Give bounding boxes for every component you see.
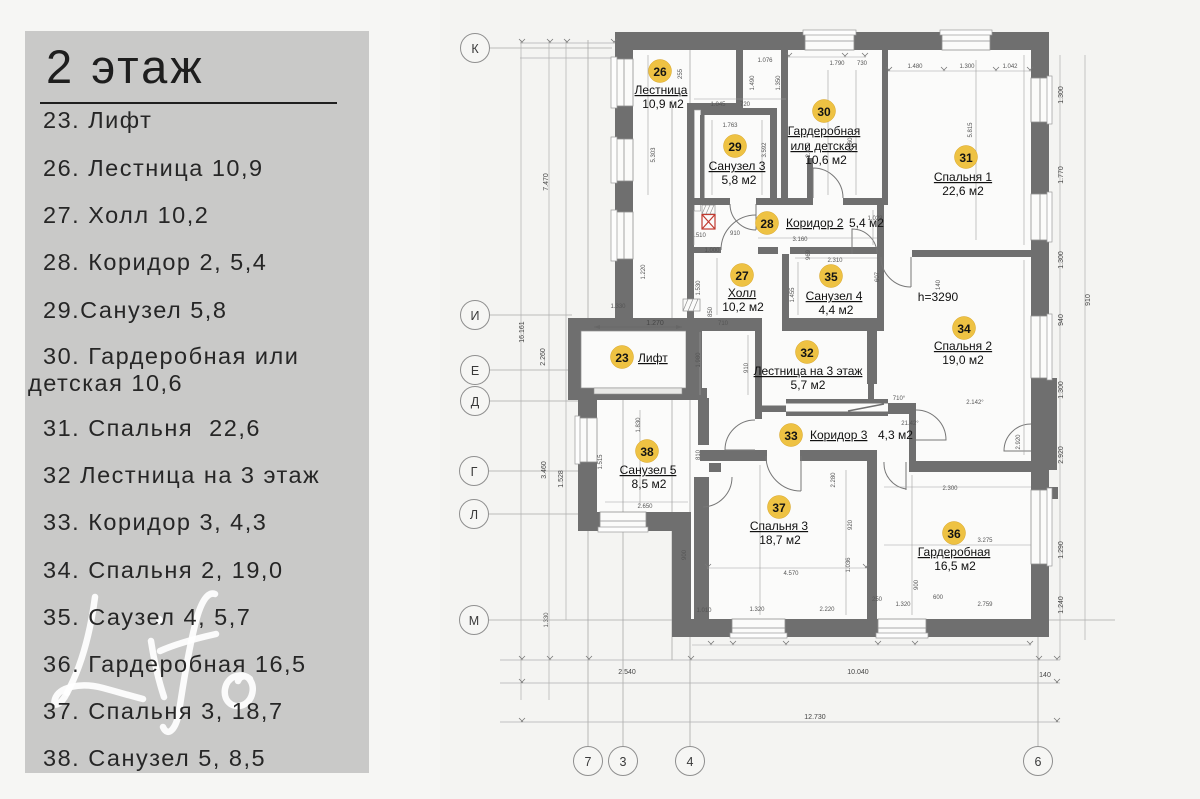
svg-text:2.920: 2.920 bbox=[1058, 446, 1065, 464]
svg-text:850: 850 bbox=[708, 306, 714, 317]
svg-text:И: И bbox=[471, 309, 480, 323]
svg-text:8,5 м2: 8,5 м2 bbox=[632, 477, 667, 491]
svg-text:1.860: 1.860 bbox=[848, 137, 854, 153]
svg-text:910: 910 bbox=[1085, 294, 1092, 306]
svg-text:1.350: 1.350 bbox=[776, 75, 782, 91]
svg-text:30: 30 bbox=[817, 105, 831, 119]
svg-text:2.540: 2.540 bbox=[618, 669, 636, 676]
svg-text:730: 730 bbox=[857, 61, 868, 67]
svg-text:5.303: 5.303 bbox=[651, 147, 657, 163]
svg-text:2.220: 2.220 bbox=[819, 607, 835, 613]
svg-text:2.650: 2.650 bbox=[637, 504, 653, 510]
svg-text:2.920: 2.920 bbox=[1016, 434, 1022, 450]
svg-text:26: 26 bbox=[653, 65, 667, 79]
svg-text:2.310: 2.310 bbox=[827, 258, 843, 264]
svg-text:910: 910 bbox=[744, 362, 750, 373]
svg-text:Лифт: Лифт bbox=[638, 351, 668, 365]
svg-text:3.592: 3.592 bbox=[762, 142, 768, 158]
svg-text:1.220: 1.220 bbox=[641, 264, 647, 280]
svg-text:1.530: 1.530 bbox=[696, 280, 702, 296]
svg-text:1.455: 1.455 bbox=[790, 287, 796, 303]
svg-text:Санузел 5: Санузел 5 bbox=[620, 463, 677, 477]
svg-text:h=3290: h=3290 bbox=[918, 290, 959, 304]
svg-text:29: 29 bbox=[728, 140, 742, 154]
svg-text:810: 810 bbox=[696, 449, 702, 460]
svg-text:4,3 м2: 4,3 м2 bbox=[878, 428, 913, 442]
svg-text:33: 33 bbox=[784, 429, 798, 443]
svg-text:7.470: 7.470 bbox=[543, 173, 550, 191]
svg-text:2.300: 2.300 bbox=[942, 486, 958, 492]
svg-text:3.275: 3.275 bbox=[977, 538, 993, 544]
svg-text:607: 607 bbox=[875, 271, 881, 282]
svg-text:10.040: 10.040 bbox=[847, 669, 869, 676]
svg-text:Коридор 3: Коридор 3 bbox=[810, 428, 868, 442]
svg-text:22,6 м2: 22,6 м2 bbox=[942, 184, 984, 198]
svg-text:19,0 м2: 19,0 м2 bbox=[942, 353, 984, 367]
svg-text:3.160: 3.160 bbox=[792, 237, 808, 243]
svg-text:16,5 м2: 16,5 м2 bbox=[934, 559, 976, 573]
svg-text:140: 140 bbox=[1039, 672, 1051, 679]
svg-text:4: 4 bbox=[687, 755, 694, 769]
svg-text:1.320: 1.320 bbox=[895, 602, 911, 608]
svg-text:1.330: 1.330 bbox=[610, 304, 626, 310]
svg-text:К: К bbox=[471, 42, 479, 56]
svg-text:27: 27 bbox=[735, 269, 749, 283]
svg-text:1.490: 1.490 bbox=[750, 75, 756, 91]
svg-text:1.300: 1.300 bbox=[1058, 86, 1065, 104]
svg-text:255: 255 bbox=[678, 68, 684, 79]
svg-text:1.528: 1.528 bbox=[558, 470, 565, 488]
svg-text:1.763: 1.763 bbox=[722, 123, 738, 129]
svg-text:Г: Г bbox=[471, 465, 478, 479]
svg-text:12.730: 12.730 bbox=[804, 714, 826, 721]
svg-text:10,2 м2: 10,2 м2 bbox=[722, 300, 764, 314]
svg-text:5,8 м2: 5,8 м2 bbox=[722, 173, 757, 187]
svg-text:23: 23 bbox=[615, 351, 629, 365]
svg-text:1.045: 1.045 bbox=[710, 102, 726, 108]
svg-text:Д: Д bbox=[471, 395, 480, 409]
svg-text:21.42°: 21.42° bbox=[901, 421, 919, 427]
svg-text:2.260: 2.260 bbox=[540, 348, 547, 366]
svg-text:140: 140 bbox=[936, 279, 942, 290]
svg-text:.510: .510 bbox=[694, 233, 706, 239]
svg-text:1.330: 1.330 bbox=[544, 612, 550, 628]
svg-text:1.010: 1.010 bbox=[696, 608, 712, 614]
svg-text:2.759: 2.759 bbox=[977, 602, 993, 608]
svg-text:36: 36 bbox=[947, 527, 961, 541]
svg-text:250: 250 bbox=[872, 597, 883, 603]
svg-text:1.023: 1.023 bbox=[867, 216, 883, 222]
svg-text:710°: 710° bbox=[893, 396, 906, 402]
svg-text:1.240: 1.240 bbox=[1058, 596, 1065, 614]
svg-text:1.042: 1.042 bbox=[1002, 64, 1018, 70]
svg-text:940: 940 bbox=[1058, 314, 1065, 326]
svg-text:31: 31 bbox=[959, 151, 973, 165]
svg-text:720: 720 bbox=[740, 102, 751, 108]
svg-text:2.410: 2.410 bbox=[806, 142, 812, 158]
svg-text:Спальня 1: Спальня 1 bbox=[934, 170, 993, 184]
svg-text:1.300: 1.300 bbox=[1058, 251, 1065, 269]
svg-text:1.830: 1.830 bbox=[636, 417, 642, 433]
svg-text:900: 900 bbox=[682, 549, 688, 560]
svg-text:Санузел 3: Санузел 3 bbox=[709, 159, 766, 173]
svg-text:Гардеробная: Гардеробная bbox=[918, 545, 991, 559]
svg-text:1.320: 1.320 bbox=[749, 607, 765, 613]
svg-text:4.570: 4.570 bbox=[783, 571, 799, 577]
svg-text:16.161: 16.161 bbox=[519, 321, 526, 343]
svg-text:38: 38 bbox=[640, 445, 654, 459]
svg-text:6: 6 bbox=[1035, 755, 1042, 769]
svg-text:1.076: 1.076 bbox=[757, 58, 773, 64]
svg-text:910: 910 bbox=[730, 231, 741, 237]
svg-text:34: 34 bbox=[957, 322, 971, 336]
svg-text:969: 969 bbox=[806, 249, 812, 260]
svg-text:32: 32 bbox=[800, 346, 814, 360]
svg-text:4,4 м2: 4,4 м2 bbox=[819, 303, 854, 317]
svg-text:Гардеробная: Гардеробная bbox=[788, 124, 861, 138]
svg-text:1.770: 1.770 bbox=[1058, 166, 1065, 184]
svg-text:Холл: Холл bbox=[728, 286, 756, 300]
svg-text:Лестница: Лестница bbox=[635, 83, 688, 97]
svg-text:1.980: 1.980 bbox=[696, 352, 702, 368]
svg-text:3.460: 3.460 bbox=[541, 461, 548, 479]
svg-text:Коридор 2: Коридор 2 bbox=[786, 216, 844, 230]
svg-text:900: 900 bbox=[914, 579, 920, 590]
svg-text:35: 35 bbox=[824, 270, 838, 284]
svg-text:37: 37 bbox=[772, 501, 786, 515]
svg-text:600: 600 bbox=[933, 595, 944, 601]
svg-text:1.790: 1.790 bbox=[829, 61, 845, 67]
svg-text:Санузел 4: Санузел 4 bbox=[806, 289, 863, 303]
svg-text:1.290: 1.290 bbox=[1058, 541, 1065, 559]
svg-text:1.300: 1.300 bbox=[959, 64, 975, 70]
svg-text:10,9 м2: 10,9 м2 bbox=[642, 97, 684, 111]
svg-text:Е: Е bbox=[471, 364, 479, 378]
svg-text:1.000: 1.000 bbox=[704, 248, 720, 254]
svg-text:18,7 м2: 18,7 м2 bbox=[759, 533, 801, 547]
svg-text:710: 710 bbox=[718, 321, 729, 327]
svg-text:М: М bbox=[469, 614, 479, 628]
svg-text:5.815: 5.815 bbox=[968, 122, 974, 138]
svg-text:Спальня 3: Спальня 3 bbox=[750, 519, 809, 533]
svg-text:2.280: 2.280 bbox=[831, 472, 837, 488]
svg-text:Спальня 2: Спальня 2 bbox=[934, 339, 993, 353]
svg-text:Лестница на 3 этаж: Лестница на 3 этаж bbox=[754, 364, 863, 378]
svg-text:5,7 м2: 5,7 м2 bbox=[791, 378, 826, 392]
svg-text:1.036: 1.036 bbox=[846, 557, 852, 573]
svg-text:3: 3 bbox=[620, 755, 627, 769]
svg-text:Л: Л bbox=[470, 508, 478, 522]
svg-text:1.515: 1.515 bbox=[598, 454, 604, 470]
svg-text:2.142°: 2.142° bbox=[966, 400, 984, 406]
svg-text:28: 28 bbox=[760, 217, 774, 231]
svg-text:920: 920 bbox=[848, 519, 854, 530]
svg-text:7: 7 bbox=[585, 755, 592, 769]
svg-text:1.300: 1.300 bbox=[1058, 381, 1065, 399]
svg-text:1.480: 1.480 bbox=[907, 64, 923, 70]
svg-text:1.270: 1.270 bbox=[646, 320, 664, 327]
